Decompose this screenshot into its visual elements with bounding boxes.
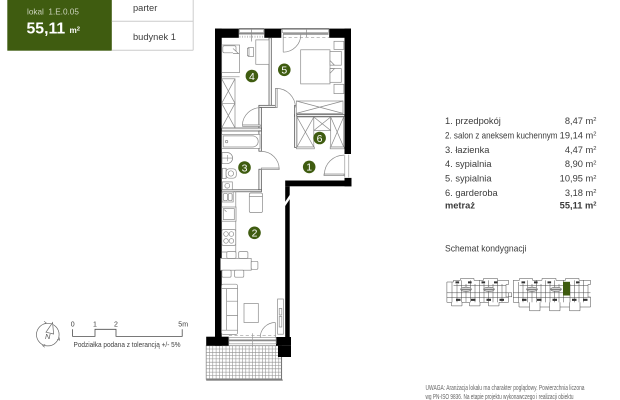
svg-text:4,47 m2: 4,47 m2 [565, 145, 597, 155]
svg-text:55,11 m2: 55,11 m2 [560, 200, 597, 210]
svg-text:1. przedpokój: 1. przedpokój [445, 116, 501, 126]
svg-text:0: 0 [71, 321, 75, 328]
svg-text:2. salon z aneksem kuchennym: 2. salon z aneksem kuchennym [445, 130, 558, 140]
svg-text:2: 2 [114, 321, 118, 328]
svg-text:2: 2 [252, 228, 258, 240]
svg-text:N: N [45, 332, 51, 341]
svg-text:metraż: metraż [445, 200, 475, 210]
svg-text:budynek 1: budynek 1 [133, 32, 176, 42]
svg-text:1: 1 [306, 162, 312, 174]
svg-text:4: 4 [249, 71, 255, 83]
svg-text:1: 1 [93, 321, 97, 328]
svg-text:5. sypialnia: 5. sypialnia [445, 174, 492, 184]
svg-text:5: 5 [281, 65, 287, 77]
svg-text:wg PN-ISO 9836. Na etapie proj: wg PN-ISO 9836. Na etapie projektu wykon… [425, 394, 574, 400]
svg-text:6: 6 [317, 133, 323, 145]
svg-text:Podziałka podana z tolerancją: Podziałka podana z tolerancją +/- 5% [74, 340, 182, 349]
svg-text:parter: parter [133, 3, 157, 13]
svg-text:55,11: 55,11 [27, 21, 66, 38]
svg-text:19,14 m2: 19,14 m2 [560, 130, 597, 140]
svg-text:6. garderoba: 6. garderoba [445, 188, 499, 198]
svg-text:3. łazienka: 3. łazienka [445, 145, 490, 155]
svg-text:4. sypialnia: 4. sypialnia [445, 159, 492, 169]
svg-text:lokal 1.E.0.05: lokal 1.E.0.05 [27, 8, 79, 17]
svg-text:3: 3 [242, 162, 248, 174]
svg-text:8,90 m2: 8,90 m2 [565, 159, 597, 169]
svg-text:8,47 m2: 8,47 m2 [565, 116, 597, 126]
svg-text:10,95 m2: 10,95 m2 [560, 174, 597, 184]
svg-text:UWAGA: Aranżacja lokalu ma cha: UWAGA: Aranżacja lokalu ma charakter pog… [426, 385, 585, 392]
svg-text:5m: 5m [178, 321, 188, 328]
svg-text:3,18 m2: 3,18 m2 [565, 188, 597, 198]
svg-text:Schemat kondygnacji: Schemat kondygnacji [445, 244, 527, 255]
